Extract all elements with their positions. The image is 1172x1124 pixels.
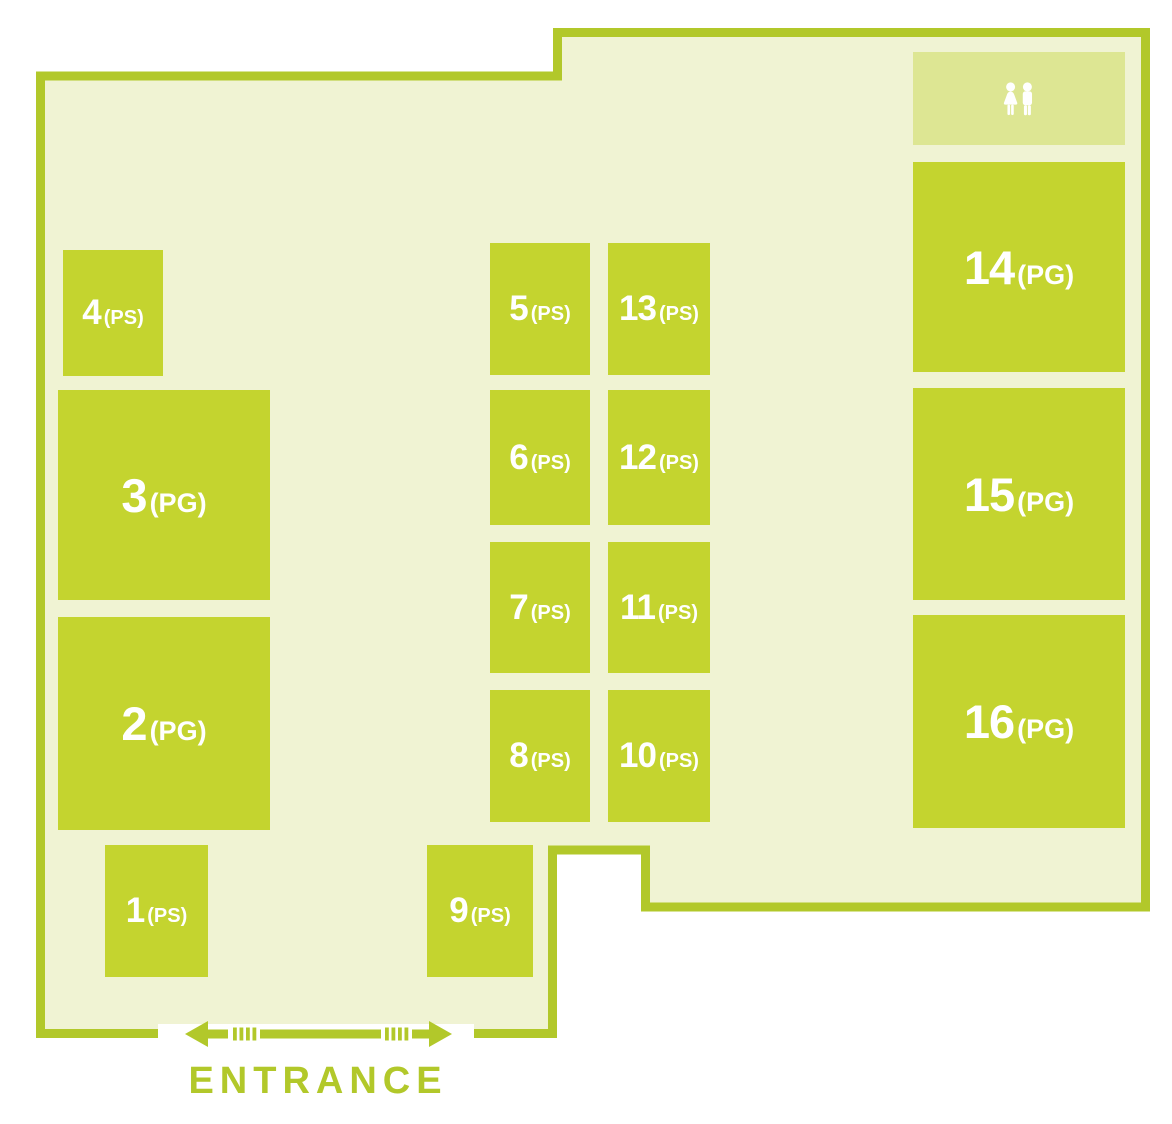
booth-number: 3 xyxy=(121,468,146,523)
booth-label: 2 (PG) xyxy=(121,696,206,751)
booth-number: 15 xyxy=(964,467,1014,522)
booth-label: 4 (PS) xyxy=(82,293,143,333)
booth-suffix: (PG) xyxy=(150,716,207,747)
booth-suffix: (PS) xyxy=(659,750,699,773)
booth-suffix: (PG) xyxy=(1017,487,1074,518)
restroom-icon xyxy=(998,82,1040,116)
booth-4: 4 (PS) xyxy=(63,250,163,376)
entrance-label: ENTRANCE xyxy=(188,1060,447,1103)
booth-number: 13 xyxy=(619,289,656,329)
man-figure xyxy=(1023,82,1032,115)
booth-number: 9 xyxy=(449,891,467,931)
woman-figure xyxy=(1004,82,1017,115)
booth-3: 3 (PG) xyxy=(58,390,270,600)
booth-label: 15 (PG) xyxy=(964,467,1074,522)
booth-label: 6 (PS) xyxy=(509,438,570,478)
booth-suffix: (PS) xyxy=(104,307,144,330)
booth-suffix: (PS) xyxy=(531,750,571,773)
booth-5: 5 (PS) xyxy=(490,243,590,375)
booth-label: 8 (PS) xyxy=(509,736,570,776)
booth-suffix: (PG) xyxy=(1017,714,1074,745)
booth-label: 3 (PG) xyxy=(121,468,206,523)
booth-14: 14 (PG) xyxy=(913,162,1125,372)
booth-suffix: (PG) xyxy=(1017,260,1074,291)
booth-number: 14 xyxy=(964,240,1014,295)
booth-suffix: (PS) xyxy=(659,452,699,475)
booth-suffix: (PS) xyxy=(659,303,699,326)
booth-number: 12 xyxy=(619,438,656,478)
booth-11: 11 (PS) xyxy=(608,542,710,673)
booth-number: 16 xyxy=(964,694,1014,749)
booth-label: 5 (PS) xyxy=(509,289,570,329)
booth-2: 2 (PG) xyxy=(58,617,270,830)
booth-suffix: (PS) xyxy=(471,905,511,928)
booth-suffix: (PS) xyxy=(531,303,571,326)
booth-label: 11 (PS) xyxy=(620,588,698,628)
booth-number: 4 xyxy=(82,293,100,333)
booth-suffix: (PS) xyxy=(147,905,187,928)
booth-label: 16 (PG) xyxy=(964,694,1074,749)
booth-suffix: (PS) xyxy=(531,602,571,625)
booth-16: 16 (PG) xyxy=(913,615,1125,828)
booth-suffix: (PG) xyxy=(150,488,207,519)
booth-8: 8 (PS) xyxy=(490,690,590,822)
booth-label: 9 (PS) xyxy=(449,891,510,931)
booth-label: 14 (PG) xyxy=(964,240,1074,295)
floor-plan-canvas: 1 (PS) 2 (PG) 3 (PG) 4 (PS) 5 (PS) xyxy=(0,0,1172,1124)
booth-number: 1 xyxy=(126,891,144,931)
booth-label: 7 (PS) xyxy=(509,588,570,628)
booth-number: 11 xyxy=(620,588,655,628)
booth-number: 5 xyxy=(509,289,527,329)
booth-number: 10 xyxy=(619,736,656,776)
booth-label: 1 (PS) xyxy=(126,891,187,931)
restroom-area xyxy=(913,52,1125,145)
booth-suffix: (PS) xyxy=(658,602,698,625)
booth-13: 13 (PS) xyxy=(608,243,710,375)
booth-number: 6 xyxy=(509,438,527,478)
booth-9: 9 (PS) xyxy=(427,845,533,977)
booth-15: 15 (PG) xyxy=(913,388,1125,600)
booth-10: 10 (PS) xyxy=(608,690,710,822)
booth-number: 8 xyxy=(509,736,527,776)
booth-7: 7 (PS) xyxy=(490,542,590,673)
booth-12: 12 (PS) xyxy=(608,390,710,525)
booth-1: 1 (PS) xyxy=(105,845,208,977)
booth-label: 10 (PS) xyxy=(619,736,699,776)
booth-label: 13 (PS) xyxy=(619,289,699,329)
booth-number: 7 xyxy=(509,588,527,628)
booth-6: 6 (PS) xyxy=(490,390,590,525)
booth-suffix: (PS) xyxy=(531,452,571,475)
booth-number: 2 xyxy=(121,696,146,751)
booth-label: 12 (PS) xyxy=(619,438,699,478)
